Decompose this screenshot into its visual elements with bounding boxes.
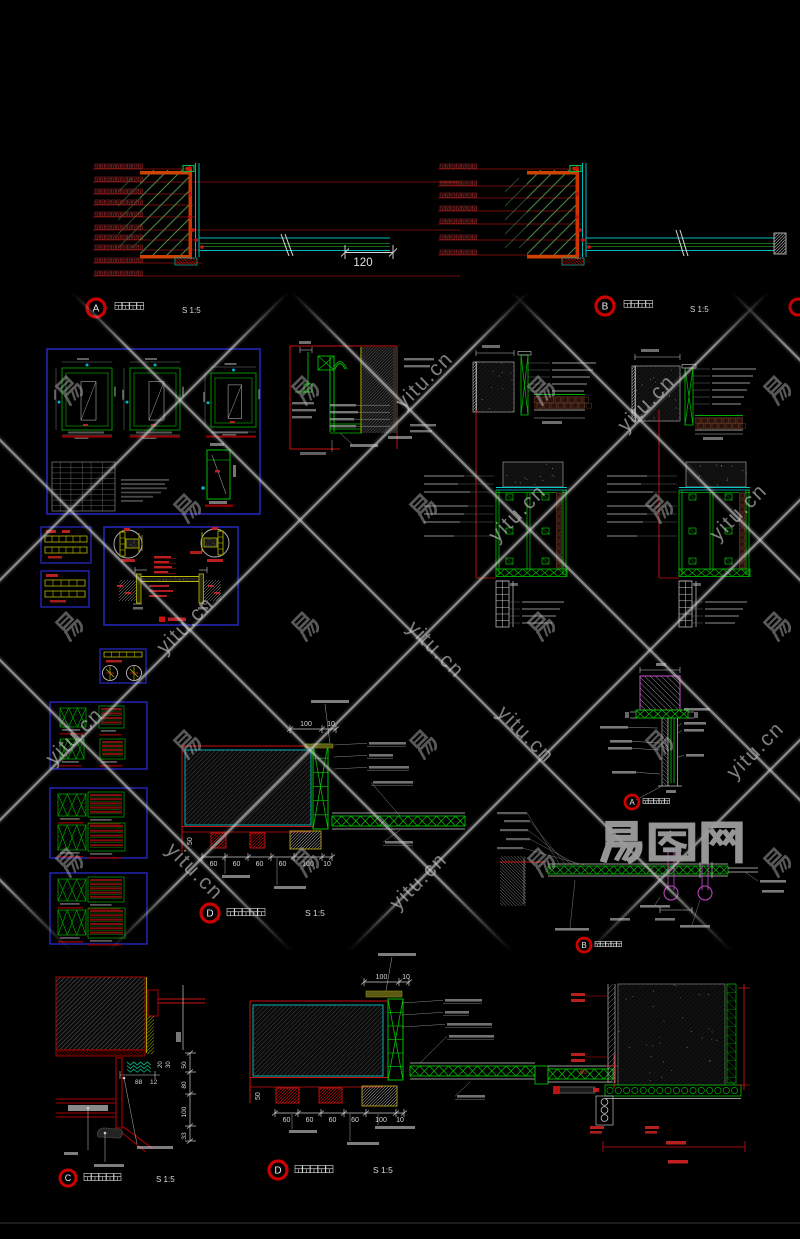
svg-text:88: 88	[135, 1079, 143, 1086]
svg-text:B: B	[581, 941, 586, 950]
svg-text:60: 60	[306, 1117, 314, 1124]
svg-text:60: 60	[580, 1070, 587, 1076]
svg-text:S 1:5: S 1:5	[182, 306, 201, 315]
svg-text:10: 10	[396, 1117, 404, 1124]
svg-text:60: 60	[279, 861, 287, 868]
svg-text:12: 12	[150, 1079, 158, 1086]
svg-text:S 1:5: S 1:5	[305, 908, 325, 918]
svg-text:100: 100	[375, 1117, 387, 1124]
svg-text:D: D	[274, 1166, 281, 1177]
svg-text:120: 120	[353, 257, 372, 269]
svg-text:100: 100	[300, 721, 312, 728]
svg-text:S 1:5: S 1:5	[690, 305, 709, 314]
svg-text:60: 60	[233, 861, 241, 868]
svg-text:100: 100	[376, 974, 388, 981]
svg-text:33: 33	[181, 1132, 188, 1140]
svg-text:60: 60	[256, 861, 264, 868]
svg-text:B: B	[602, 302, 609, 313]
svg-text:D: D	[206, 909, 213, 920]
svg-text:60: 60	[351, 1117, 359, 1124]
svg-text:S 1:5: S 1:5	[156, 1175, 175, 1184]
svg-text:60: 60	[283, 1117, 291, 1124]
svg-text:20: 20	[158, 1061, 164, 1068]
svg-text:60: 60	[329, 1117, 337, 1124]
svg-text:10: 10	[323, 861, 331, 868]
svg-text:80: 80	[181, 1081, 188, 1089]
svg-text:A: A	[629, 798, 635, 807]
svg-text:10: 10	[402, 974, 410, 981]
svg-text:C: C	[65, 1173, 72, 1183]
svg-text:50: 50	[255, 1092, 262, 1100]
svg-text:30: 30	[166, 1061, 172, 1068]
